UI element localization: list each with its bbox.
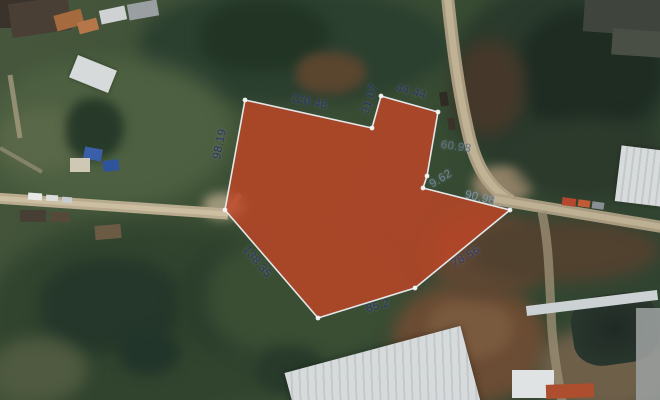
building-roof — [546, 383, 594, 399]
building-roof — [94, 224, 121, 240]
vehicle — [447, 118, 455, 131]
dark-roof — [611, 28, 660, 57]
vehicle — [62, 197, 72, 204]
container — [592, 201, 605, 210]
dirt-patch — [470, 220, 660, 282]
building-roof — [636, 308, 660, 400]
container — [578, 199, 591, 208]
measurement-label: 44.44 — [395, 82, 428, 102]
vehicle — [46, 195, 58, 202]
ground-slab — [70, 158, 90, 172]
field-patch — [0, 338, 87, 400]
shed-roof — [50, 212, 70, 222]
warehouse-roof — [615, 145, 660, 206]
container — [562, 197, 577, 207]
vehicle — [439, 92, 449, 107]
vehicle — [28, 193, 42, 201]
shed-roof — [20, 210, 46, 222]
satellite-map[interactable]: 120.4831.0744.4460.989.6290.9878.5685.21… — [0, 0, 660, 400]
building-roof — [99, 5, 127, 24]
blue-canopy — [102, 159, 119, 172]
measurement-label: 9.62 — [428, 168, 455, 191]
